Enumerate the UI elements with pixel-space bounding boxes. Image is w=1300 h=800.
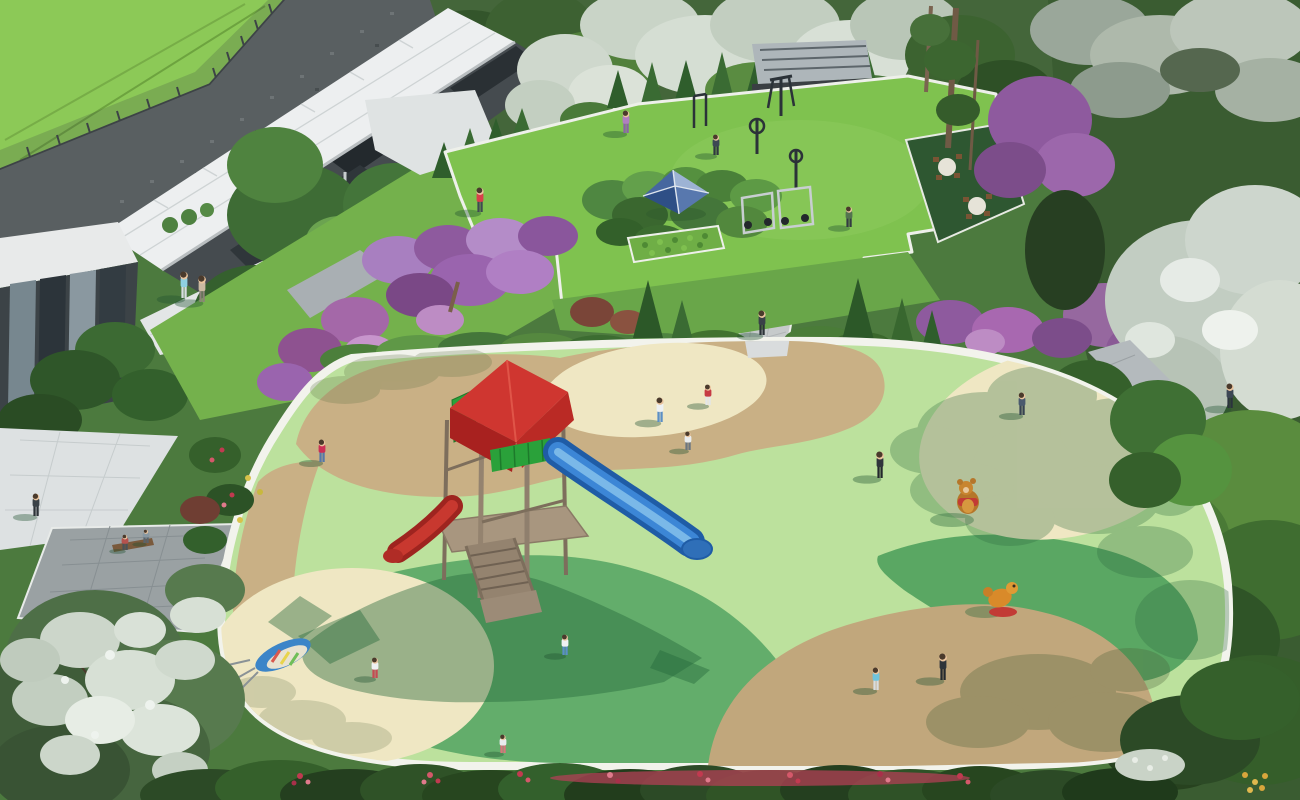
children-playground xyxy=(210,327,1245,766)
park-rendering xyxy=(0,0,1300,800)
red-flower-band xyxy=(550,770,970,786)
